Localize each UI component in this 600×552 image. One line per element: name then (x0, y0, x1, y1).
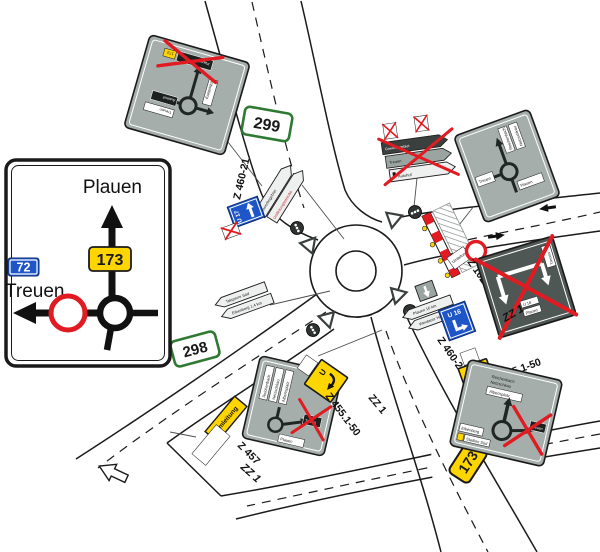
main-sign-route-72: 72 (8, 258, 39, 276)
lane-sign-right-crossed: Treuen U 16 Plauen (476, 236, 576, 338)
label-z460-north: Z 460-21 (231, 157, 252, 201)
route-shield-298: 298 (169, 330, 220, 367)
main-direction-sign: Plauen 173 72 Treuen (5, 160, 170, 366)
label-zz1-mid: ZZ 1 (366, 392, 389, 416)
traffic-signal-icon (406, 203, 423, 220)
map-sign-top-left: Eibenberg Treuen Autohof Plauen 173 (124, 35, 250, 156)
yield-sign-icon (384, 213, 402, 230)
road-north-right-edge (301, 1, 382, 222)
roundabout-island (336, 251, 376, 291)
yield-sign-icon (318, 312, 337, 330)
main-sign-bottom-stub (107, 328, 111, 350)
label-zz1-left: ZZ 1 (237, 461, 263, 486)
flow-direction-arrow (96, 458, 131, 487)
map-sign-right: Reichenbach Netzschkau Treuen Plauen (454, 109, 561, 223)
detour-sign-u17: U 17 (227, 196, 265, 228)
main-sign-173-number: 173 (97, 252, 124, 269)
pointer-signs-west: Talsperre Süd Eibenberg 1,4 km (214, 281, 274, 322)
traffic-plan-canvas: 299 298 173 Plauen 173 72 Treuen (0, 0, 600, 552)
traffic-signal-icon (304, 321, 322, 339)
leader-nw-pointers (302, 185, 344, 239)
destination-plauen: Plauen (83, 177, 142, 198)
main-sign-72-number: 72 (17, 261, 31, 275)
closure-red-ring (51, 296, 85, 330)
route-shield-299: 299 (241, 106, 293, 142)
main-sign-route-173: 173 (89, 247, 131, 271)
leader-ne-pointers-pole (414, 178, 417, 207)
pointer-assembly-northeast: Gewerbegebiet Treuen Autohof (376, 112, 458, 185)
map-sign-yellow-shield (457, 433, 464, 441)
lane-arrow-west (539, 203, 557, 213)
leader-umleitung-sign (170, 432, 196, 437)
